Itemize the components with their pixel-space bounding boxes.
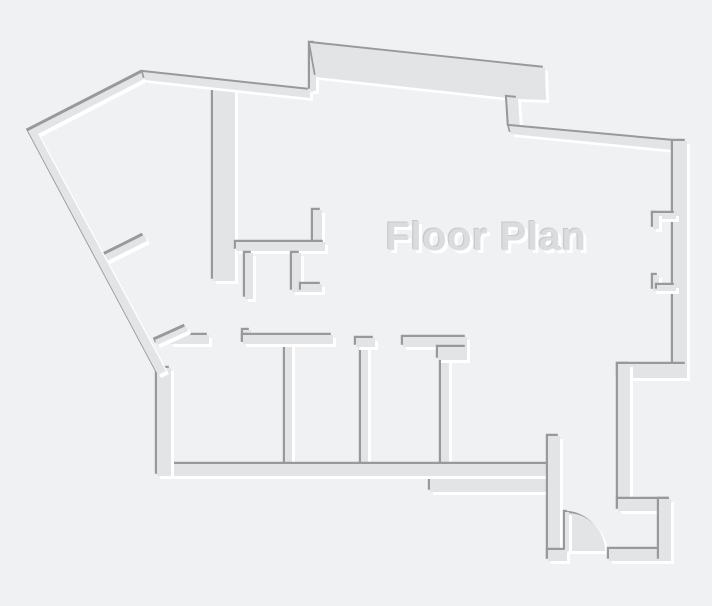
room-divider-2-shape <box>361 346 368 466</box>
step-wall-v2-shape <box>659 499 671 561</box>
floor-plan-title: Floor Plan <box>386 215 587 259</box>
room-divider-3 <box>439 356 452 469</box>
window-jamb-top-vertical-shape <box>653 213 659 229</box>
title-group: Floor Plan Floor Plan Floor Plan <box>385 214 590 262</box>
step-wall-v2 <box>657 497 674 564</box>
closet-stub-left-shape <box>245 253 253 299</box>
band-jog-shape <box>507 97 520 128</box>
entry-partition-wall-shape <box>548 436 560 561</box>
window-jamb-bottom-horizontal-shape <box>657 285 676 291</box>
rooms-left-wall <box>155 366 174 479</box>
room-divider-1 <box>283 341 295 469</box>
floor-plan-drawing: Floor Plan Floor Plan Floor Plan <box>0 0 712 606</box>
room-divider-3-shape <box>441 358 449 466</box>
outline-east-wall <box>671 139 690 381</box>
room-divider-2 <box>359 344 371 469</box>
step-wall-v1 <box>616 362 633 514</box>
rooms-bottom-wall <box>156 462 563 479</box>
rooms-top-stub-2-shape <box>356 338 375 347</box>
door-leaf-shape <box>565 512 569 551</box>
rooms-top-wall-b <box>241 333 336 347</box>
entry-bottom-wall-left-shape <box>548 550 567 561</box>
closet-stub-right-horizontal-shape <box>301 284 322 292</box>
floor-plan-page: Floor Plan Floor Plan Floor Plan <box>0 0 712 606</box>
center-thick-wall-shape <box>213 88 235 281</box>
step-wall-v1-shape <box>618 364 630 511</box>
closet-wall-horizontal-shape <box>236 242 325 251</box>
entry-partition-wall <box>546 434 563 564</box>
outline-east-wall-shape <box>673 141 687 378</box>
closet-stub-left <box>243 251 256 302</box>
closet-wall-vertical-shape <box>313 210 322 243</box>
rooms-bottom-wall-shape <box>158 464 560 476</box>
rooms-left-wall-shape <box>157 368 171 476</box>
rooms-top-wall-c-block-shape <box>438 347 467 360</box>
center-thick-wall <box>211 86 238 284</box>
door-leaf <box>563 510 572 554</box>
rooms-top-wall-b-shape <box>243 335 333 344</box>
room-divider-1-shape <box>285 343 292 466</box>
